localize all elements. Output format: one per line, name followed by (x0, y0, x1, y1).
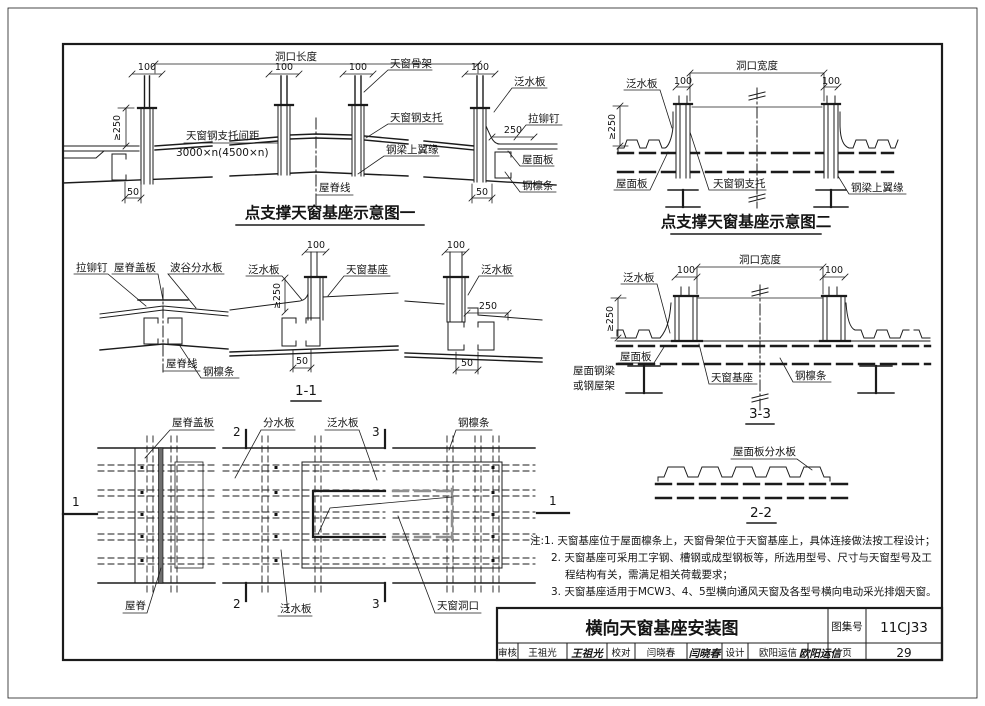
section-mark-1-right: 1 (549, 494, 557, 508)
note-line-3: 程结构有关，需满足相关荷载要求； (565, 568, 733, 581)
s11-mid-purlins (282, 318, 320, 346)
fig6-plan-view: 1 1 2 2 3 3 屋脊盖板 分水板 泛水板 钢檩条 屋脊 泛水板 天窗洞口 (63, 416, 569, 616)
s33-panel-dashed (617, 346, 930, 364)
post1-fill (141, 108, 153, 184)
fig1-left-eave-plates (63, 146, 139, 158)
plan-purlin-pair-5 (98, 558, 535, 564)
fig2-point-support-diagram-2: 洞口宽度 100 100 ≥250 泛水板 屋面板 天窗钢支托 钢梁上翼缘 点支… (607, 59, 906, 234)
proofreader-signature: 闫晓春 (689, 647, 722, 660)
leader-flashing-fig1 (494, 88, 547, 112)
section-mark-3-top: 3 (372, 425, 380, 439)
plan-seams-right (447, 436, 499, 595)
label-divider: 分水板 (263, 416, 295, 429)
label-ridge-cover: 屋脊盖板 (114, 261, 156, 274)
drawing-title: 横向天窗基座安装图 (586, 618, 739, 639)
page-label: 页 (842, 648, 852, 659)
section-mark-2-top: 2 (233, 425, 241, 439)
label-purlin: 钢檩条 (795, 369, 827, 382)
plan-purlin-pair-3 (98, 512, 535, 518)
label-roof-panel: 屋面板 (616, 177, 648, 190)
s22-panel-dashed (656, 484, 854, 498)
label-flashing: 泛水板 (481, 263, 513, 276)
plan-opening-breakline (318, 497, 452, 534)
plan-ridge-band (159, 448, 164, 583)
s11-right-roof (405, 301, 542, 320)
note-line-2: 2. 天窗基座可采用工字钢、槽钢或成型钢板等，所选用型号、尺寸与天窗型号及工 (551, 551, 932, 564)
dim-250-text: 250 (479, 301, 497, 312)
leader-beam-flange (358, 156, 439, 174)
label-steel-support: 天窗钢支托 (390, 111, 443, 124)
s11-title: 1-1 (295, 383, 317, 399)
leader-flashing-s11-right (468, 276, 513, 295)
dim-ge250-text: ≥250 (112, 115, 123, 141)
s11-right-base (447, 277, 465, 322)
s33-deck-right (846, 303, 930, 338)
label-roof-panel: 屋面板 (522, 153, 554, 166)
post3-fill (352, 105, 364, 176)
fig2-post-left-fill (676, 104, 690, 178)
drawing-canvas: 洞口长度 100 100 100 100 ≥250 50 250 50 天窗钢支… (0, 0, 985, 706)
s11-right-purlins (448, 322, 494, 350)
label-trough-divider: 波谷分水板 (170, 261, 223, 274)
reviewer-signature: 王祖光 (571, 647, 604, 660)
fig2-deck-right (840, 112, 898, 148)
label-flashing: 泛水板 (248, 263, 280, 276)
label-purlin: 钢檩条 (522, 179, 554, 192)
label-ridge-line: 屋脊线 (166, 357, 198, 370)
plan-opening-solid-edges (313, 491, 385, 537)
s11-right-chord (405, 353, 542, 362)
label-skylight-frame: 天窗骨架 (390, 57, 432, 70)
leader-flashing-plan-top (325, 430, 377, 480)
designer-signature: 欧阳运信 (799, 647, 842, 660)
leader-trough-divider-s11 (168, 274, 224, 308)
label-ridge: 屋脊 (125, 599, 146, 612)
label-flashing: 泛水板 (623, 271, 655, 284)
s33-deck-left (617, 303, 671, 338)
leader-flashing-s33 (621, 284, 670, 333)
label-flashing: 泛水板 (514, 75, 546, 88)
s11-mid-chord (230, 346, 398, 356)
label-purlin: 钢檩条 (458, 416, 490, 429)
plan-flashing-frame (302, 462, 502, 568)
post3-frame (355, 76, 361, 105)
dim-50-text: 50 (296, 356, 308, 367)
atlas-number: 11CJ33 (880, 620, 928, 636)
post1-frame (145, 76, 150, 108)
dim-100-text: 100 (822, 76, 840, 87)
s22-title: 2-2 (750, 505, 772, 521)
plan-opening-hidden-edges (393, 489, 452, 539)
label-beam-top-flange: 钢梁上翼缘 (386, 143, 439, 156)
label-spacing-value: 3000×n(4500×n) (176, 147, 269, 159)
label-steel-support: 天窗钢支托 (713, 177, 766, 190)
dim-100-text: 100 (677, 265, 695, 276)
dim-100-text: 100 (825, 265, 843, 276)
post4-frame (477, 76, 483, 108)
label-flashing: 泛水板 (327, 416, 359, 429)
label-flashing: 泛水板 (626, 77, 658, 90)
plan-fastener-dots (141, 466, 495, 562)
page-number: 29 (896, 646, 911, 660)
label-purlin: 钢檩条 (203, 365, 235, 378)
label-roof-beam-line1: 屋面钢梁 (573, 364, 615, 377)
label-skylight-base: 天窗基座 (711, 371, 753, 384)
note-line-1: 注:1. 天窗基座位于屋面檩条上，天窗骨架位于天窗基座上，具体连接做法按工程设计… (530, 534, 935, 547)
dim-100-text: 100 (138, 62, 156, 73)
dim-opening-width-text: 洞口宽度 (739, 253, 781, 266)
dim-ge250-text: ≥250 (605, 306, 616, 332)
title-block: 横向天窗基座安装图 图集号 11CJ33 审核 王祖光 王祖光 校对 闫晓春 闫… (497, 608, 942, 660)
leader-base-s11 (328, 276, 390, 296)
label-skylight-base: 天窗基座 (346, 263, 388, 276)
fig2-panel-dashed (618, 153, 893, 172)
dim-50-text: 50 (127, 187, 139, 198)
label-roof-panel: 屋面板 (620, 350, 652, 363)
review-label: 审核 (498, 647, 518, 659)
label-rivet: 拉铆钉 (76, 261, 108, 274)
leader-ridge-cover-plan (145, 430, 214, 458)
leader-rivet-s11 (74, 274, 146, 306)
fig2-deck-left (618, 112, 673, 154)
fig3-section-1-1: 100 100 ≥250 250 50 50 拉铆钉 屋脊盖板 波谷分水板 泛水… (74, 240, 542, 401)
s33-post-left-fill (675, 296, 697, 341)
s33-dim-100 (672, 274, 848, 280)
atlas-label: 图集号 (831, 620, 863, 633)
notes-block: 注:1. 天窗基座位于屋面檩条上，天窗骨架位于天窗基座上，具体连接做法按工程设计… (530, 534, 937, 598)
label-beam-top-flange: 钢梁上翼缘 (851, 181, 904, 194)
label-roof-panel-divider: 屋面板分水板 (733, 445, 796, 458)
section-mark-1-left: 1 (72, 495, 80, 509)
post4-fill (474, 108, 486, 182)
leader-flashing-fig2 (624, 90, 672, 128)
leader-roof-panel-divider (731, 459, 812, 470)
dim-100-text: 100 (349, 62, 367, 73)
post2-fill (278, 105, 290, 175)
proofreader-name: 闫晓春 (647, 647, 676, 659)
fig1-left-purlin (112, 154, 126, 180)
dim-ge250-text: ≥250 (607, 114, 618, 140)
leader-steel-support (366, 124, 443, 138)
s11-right-frame (450, 252, 462, 277)
plan-purlin-pair-1 (98, 465, 535, 471)
dim-100-text: 100 (307, 240, 325, 251)
label-rivet: 拉铆钉 (528, 112, 560, 125)
fig5-section-2-2: 屋面板分水板 2-2 (656, 445, 854, 523)
s11-left-plates (100, 306, 228, 318)
post2-frame (281, 76, 287, 105)
plan-ridge-cover-frame (175, 462, 203, 568)
dim-50-text: 50 (476, 187, 488, 198)
dim-250-text: 250 (504, 125, 522, 136)
label-ridge-cover: 屋脊盖板 (172, 416, 214, 429)
fig2-title: 点支撑天窗基座示意图二 (661, 212, 832, 231)
s33-post-right-fill (823, 296, 845, 341)
s11-mid-roof (230, 293, 398, 310)
section-mark-2-bottom: 2 (233, 597, 241, 611)
fig1-title: 点支撑天窗基座示意图一 (245, 203, 416, 222)
designer-name: 欧阳运信 (759, 647, 797, 659)
s11-mid-base (308, 277, 323, 320)
drawing-sheet: 洞口长度 100 100 100 100 ≥250 50 250 50 天窗钢支… (0, 0, 985, 706)
fig1-dim-100-marks (129, 71, 498, 77)
s22-profile (658, 467, 830, 481)
label-flashing: 泛水板 (280, 602, 312, 615)
plan-borders (98, 448, 535, 583)
proof-label: 校对 (611, 647, 631, 659)
note-line-4: 3. 天窗基座适用于MCW3、4、5型横向通风天窗及各型号横向电动采光排烟天窗。 (551, 585, 937, 598)
fig2-post-right-fill (824, 104, 838, 178)
label-ridge-line: 屋脊线 (319, 181, 351, 194)
reviewer-name: 王祖光 (528, 647, 557, 659)
fig1-right-purlin (495, 152, 511, 178)
s11-mid-frame (311, 252, 317, 277)
leader-skylight-opening-plan (398, 516, 481, 613)
leader-purlin-plan (449, 430, 492, 450)
label-support-spacing: 天窗钢支托间距 (186, 129, 260, 142)
fig4-section-3-3: 洞口宽度 100 100 ≥250 泛水板 屋面板 屋面钢梁 或钢屋架 天窗基座… (573, 253, 930, 424)
leader-ridge-cover-s11 (112, 274, 163, 300)
dim-100-text: 100 (447, 240, 465, 251)
dim-100-text: 100 (674, 76, 692, 87)
s11-left-chord (100, 344, 228, 350)
s33-title: 3-3 (749, 406, 771, 422)
label-roof-beam-line2: 或钢屋架 (573, 379, 615, 392)
dim-ge250-text: ≥250 (272, 283, 283, 309)
dim-50-text: 50 (461, 358, 473, 369)
design-label: 设计 (725, 647, 745, 659)
section-mark-3-bottom: 3 (372, 597, 380, 611)
dim-opening-width-text: 洞口宽度 (736, 59, 778, 72)
dim-100-text: 100 (471, 62, 489, 73)
fig1-point-support-diagram-1: 洞口长度 100 100 100 100 ≥250 50 250 50 天窗钢支… (63, 50, 562, 225)
label-skylight-opening: 天窗洞口 (437, 599, 479, 612)
dim-100-text: 100 (275, 62, 293, 73)
